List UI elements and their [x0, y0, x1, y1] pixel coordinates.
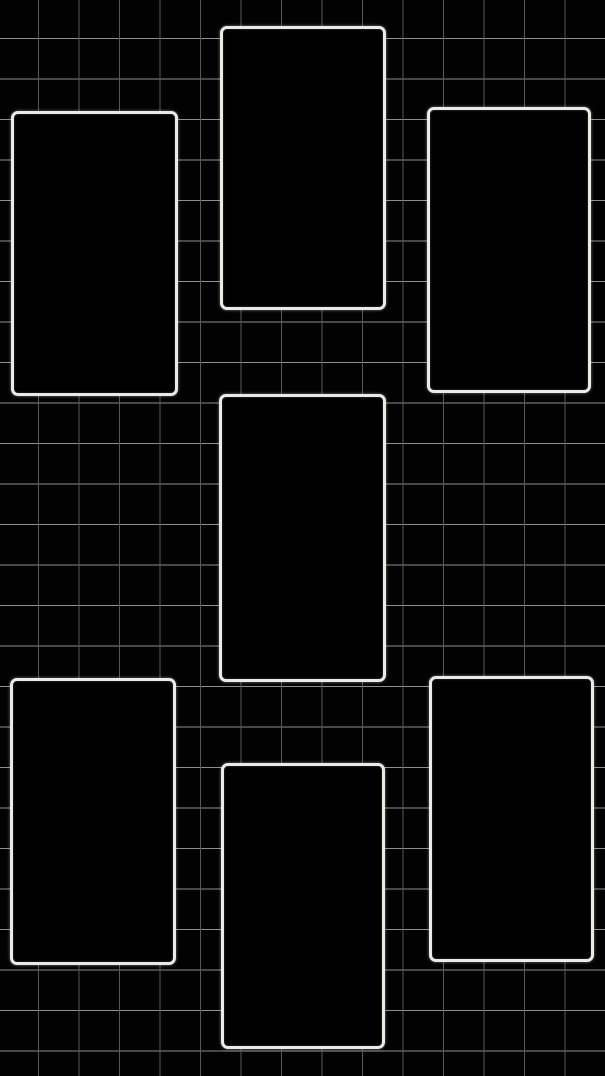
photo-frame-top-left [11, 111, 178, 396]
photo-frame-bottom-left [10, 678, 176, 965]
photo-frame-bottom-center [221, 763, 385, 1049]
photo-frame-middle-center [219, 394, 386, 682]
photo-frame-bottom-right [429, 676, 594, 962]
photo-frame-top-center [220, 26, 386, 310]
photo-frame-top-right [427, 107, 591, 393]
grid-background [0, 0, 605, 1076]
